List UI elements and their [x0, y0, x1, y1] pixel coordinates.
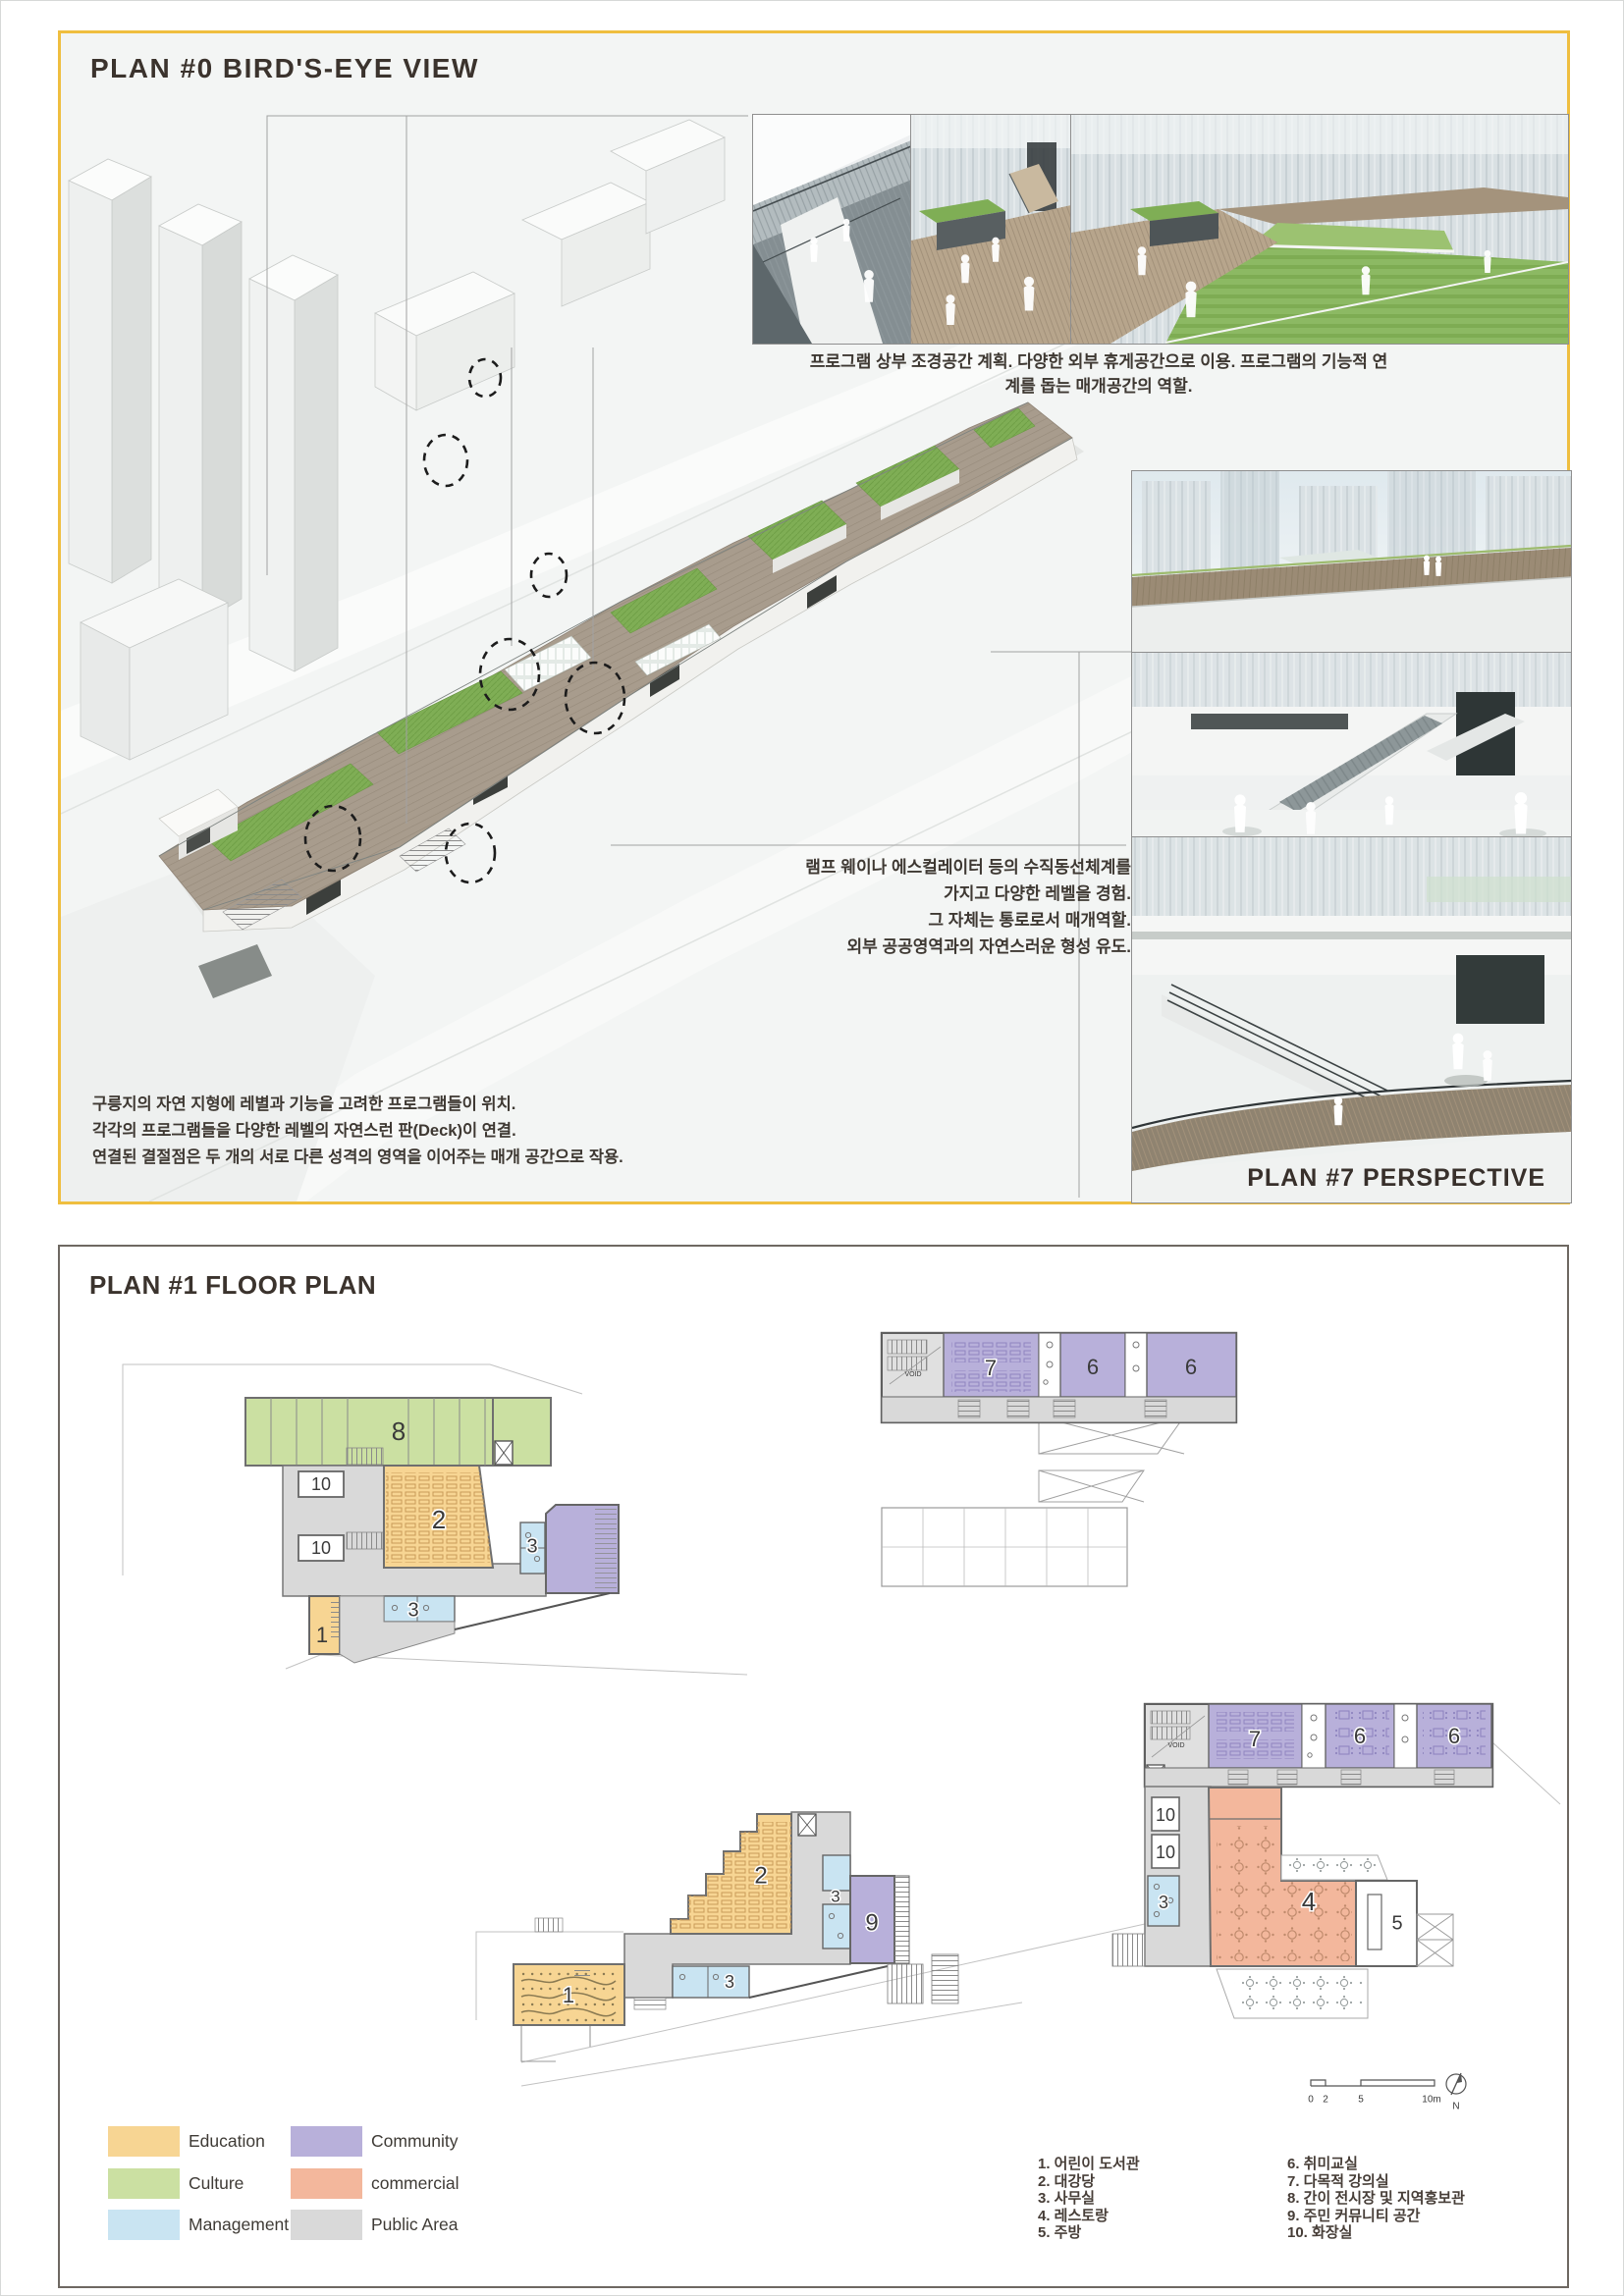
inset-photo-stairs [752, 114, 912, 345]
perspective-label: PLAN #7 PERSPECTIVE [1247, 1164, 1545, 1193]
panel-birdseye: PLAN #0 BIRD'S-EYE VIEW 프로그램 상부 조경공간 계획.… [58, 30, 1570, 1204]
svg-text:10m: 10m [1422, 2095, 1440, 2106]
svg-text:6: 6 [1448, 1724, 1460, 1748]
room-list-item: 9. 주민 커뮤니티 공간 [1287, 2208, 1465, 2225]
legend-item-management: Management [108, 2210, 289, 2240]
legend-swatch-management [108, 2210, 180, 2240]
svg-text:VOID: VOID [1167, 1742, 1184, 1749]
plan-upper-west-wing: 8 10 10 2 3 3 1 [123, 1364, 747, 1675]
svg-text:4: 4 [1302, 1887, 1316, 1916]
svg-text:10: 10 [1156, 1805, 1175, 1825]
svg-text:2: 2 [1323, 2095, 1328, 2106]
svg-text:0: 0 [1308, 2095, 1314, 2106]
photo-escalator-plaza [1131, 652, 1572, 838]
inset-photo-roof-lawn [1070, 114, 1569, 345]
svg-text:5: 5 [1358, 2095, 1364, 2106]
legend-label: Education [189, 2131, 265, 2152]
annotation-line: 램프 웨이나 에스컬레이터 등의 수직동선체계를 [689, 854, 1131, 881]
legend-swatch-community [291, 2126, 362, 2157]
svg-text:2: 2 [754, 1862, 767, 1889]
svg-text:3: 3 [526, 1535, 537, 1557]
svg-text:10: 10 [311, 1538, 331, 1558]
legend-item-public-area: Public Area [291, 2210, 459, 2240]
legend-label: commercial [371, 2173, 459, 2194]
inset-caption: 프로그램 상부 조경공간 계획. 다양한 외부 휴게공간으로 이용. 프로그램의… [804, 347, 1393, 397]
svg-text:2: 2 [432, 1505, 446, 1534]
svg-text:1: 1 [316, 1623, 328, 1647]
room-list-item: 8. 간이 전시장 및 지역홍보관 [1287, 2190, 1465, 2208]
plan-lower-east-block: VOID 7 6 6 10 10 3 4 5 [1112, 1704, 1560, 2018]
inset-photo-deck-ramp [910, 114, 1072, 345]
room-list-item: 2. 대강당 [1038, 2173, 1140, 2191]
room-list-item: 1. 어린이 도서관 [1038, 2156, 1140, 2173]
annotation-line: 외부 공공영역과의 자연스러운 형성 유도. [689, 934, 1131, 960]
photo-escalator-plaza-art [1132, 653, 1571, 837]
svg-text:10: 10 [1156, 1842, 1175, 1862]
svg-text:3: 3 [831, 1887, 839, 1905]
room-list-item: 7. 다목적 강의실 [1287, 2173, 1465, 2191]
room-list-item: 10. 화장실 [1287, 2224, 1465, 2242]
svg-text:3: 3 [407, 1599, 418, 1621]
annotation-line: 가지고 다양한 레벨을 경험. [689, 881, 1131, 907]
legend-item-education: Education [108, 2126, 265, 2157]
legend-label: Community [371, 2131, 459, 2152]
svg-text:6: 6 [1354, 1724, 1366, 1748]
panel-floorplan: PLAN #1 FLOOR PLAN [58, 1245, 1569, 2288]
svg-text:9: 9 [865, 1909, 878, 1936]
room-list-item: 3. 사무실 [1038, 2190, 1140, 2208]
scale-bar [1311, 2080, 1435, 2086]
annotation-line: 연결된 결절점은 두 개의 서로 다른 성격의 영역을 이어주는 매개 공간으로… [92, 1145, 623, 1171]
room-list-1-5: 1. 어린이 도서관 2. 대강당 3. 사무실 4. 레스토랑 5. 주방 [1038, 2156, 1140, 2242]
photo-roofdeck-wide-art [1132, 471, 1571, 653]
north-arrow-icon [1446, 2073, 1466, 2095]
legend-swatch-commercial [291, 2168, 362, 2199]
svg-text:6: 6 [1185, 1355, 1197, 1379]
room-list-item: 6. 취미교실 [1287, 2156, 1465, 2173]
room-list-6-10: 6. 취미교실 7. 다목적 강의실 8. 간이 전시장 및 지역홍보관 9. … [1287, 2156, 1465, 2242]
room-list-item: 5. 주방 [1038, 2224, 1140, 2242]
legend-item-community: Community [291, 2126, 459, 2157]
svg-text:8: 8 [392, 1416, 406, 1446]
annotation-circulation: 램프 웨이나 에스컬레이터 등의 수직동선체계를 가지고 다양한 레벨을 경험.… [689, 854, 1131, 960]
annotation-line: 각각의 프로그램들을 다양한 레벨의 자연스런 판(Deck)이 연결. [92, 1118, 623, 1145]
svg-text:10: 10 [311, 1474, 331, 1494]
legend-label: Public Area [371, 2215, 459, 2235]
legend-item-culture: Culture [108, 2168, 244, 2199]
svg-text:N: N [1452, 2102, 1459, 2112]
annotation-line: 그 자체는 통로로서 매개역할. [689, 907, 1131, 934]
presentation-board: PLAN #0 BIRD'S-EYE VIEW 프로그램 상부 조경공간 계획.… [0, 0, 1624, 2296]
legend-swatch-public-area [291, 2210, 362, 2240]
photo-roofdeck-wide [1131, 470, 1572, 654]
svg-text:3: 3 [1159, 1893, 1168, 1912]
plan-upper-east-bar: VOID 7 6 6 [882, 1333, 1236, 1422]
svg-text:6: 6 [1087, 1355, 1099, 1379]
legend-swatch-culture [108, 2168, 180, 2199]
photo-perspective-tall [1131, 836, 1572, 1203]
svg-text:VOID: VOID [904, 1371, 921, 1378]
legend-item-commercial: commercial [291, 2168, 459, 2199]
svg-text:7: 7 [1249, 1727, 1261, 1751]
inset-photo-stairs-art [753, 115, 911, 344]
svg-text:1: 1 [563, 1983, 574, 2007]
room-list-item: 4. 레스토랑 [1038, 2208, 1140, 2225]
svg-text:3: 3 [725, 1972, 734, 1992]
annotation-line: 구릉지의 자연 지형에 레별과 기능을 고려한 프로그램들이 위치. [92, 1092, 623, 1118]
inset-photo-roof-lawn-art [1071, 115, 1568, 344]
legend-label: Culture [189, 2173, 244, 2194]
photo-perspective-tall-art [1132, 837, 1571, 1202]
elevator-icon [798, 1814, 816, 1836]
panel1-title: PLAN #0 BIRD'S-EYE VIEW [90, 53, 479, 84]
elevator-icon [495, 1441, 513, 1465]
outline-building [882, 1416, 1184, 1586]
legend-label: Management [189, 2215, 289, 2235]
plan-lower-west-wing: 2 3 9 1 3 [476, 1812, 1145, 2086]
inset-photo-deck-ramp-art [911, 115, 1071, 344]
annotation-site: 구릉지의 자연 지형에 레별과 기능을 고려한 프로그램들이 위치. 각각의 프… [92, 1092, 623, 1171]
svg-text:7: 7 [985, 1356, 997, 1380]
svg-text:5: 5 [1391, 1912, 1402, 1934]
floor-plan-drawings: 8 10 10 2 3 3 1 [60, 1247, 1567, 2286]
legend-swatch-education [108, 2126, 180, 2157]
